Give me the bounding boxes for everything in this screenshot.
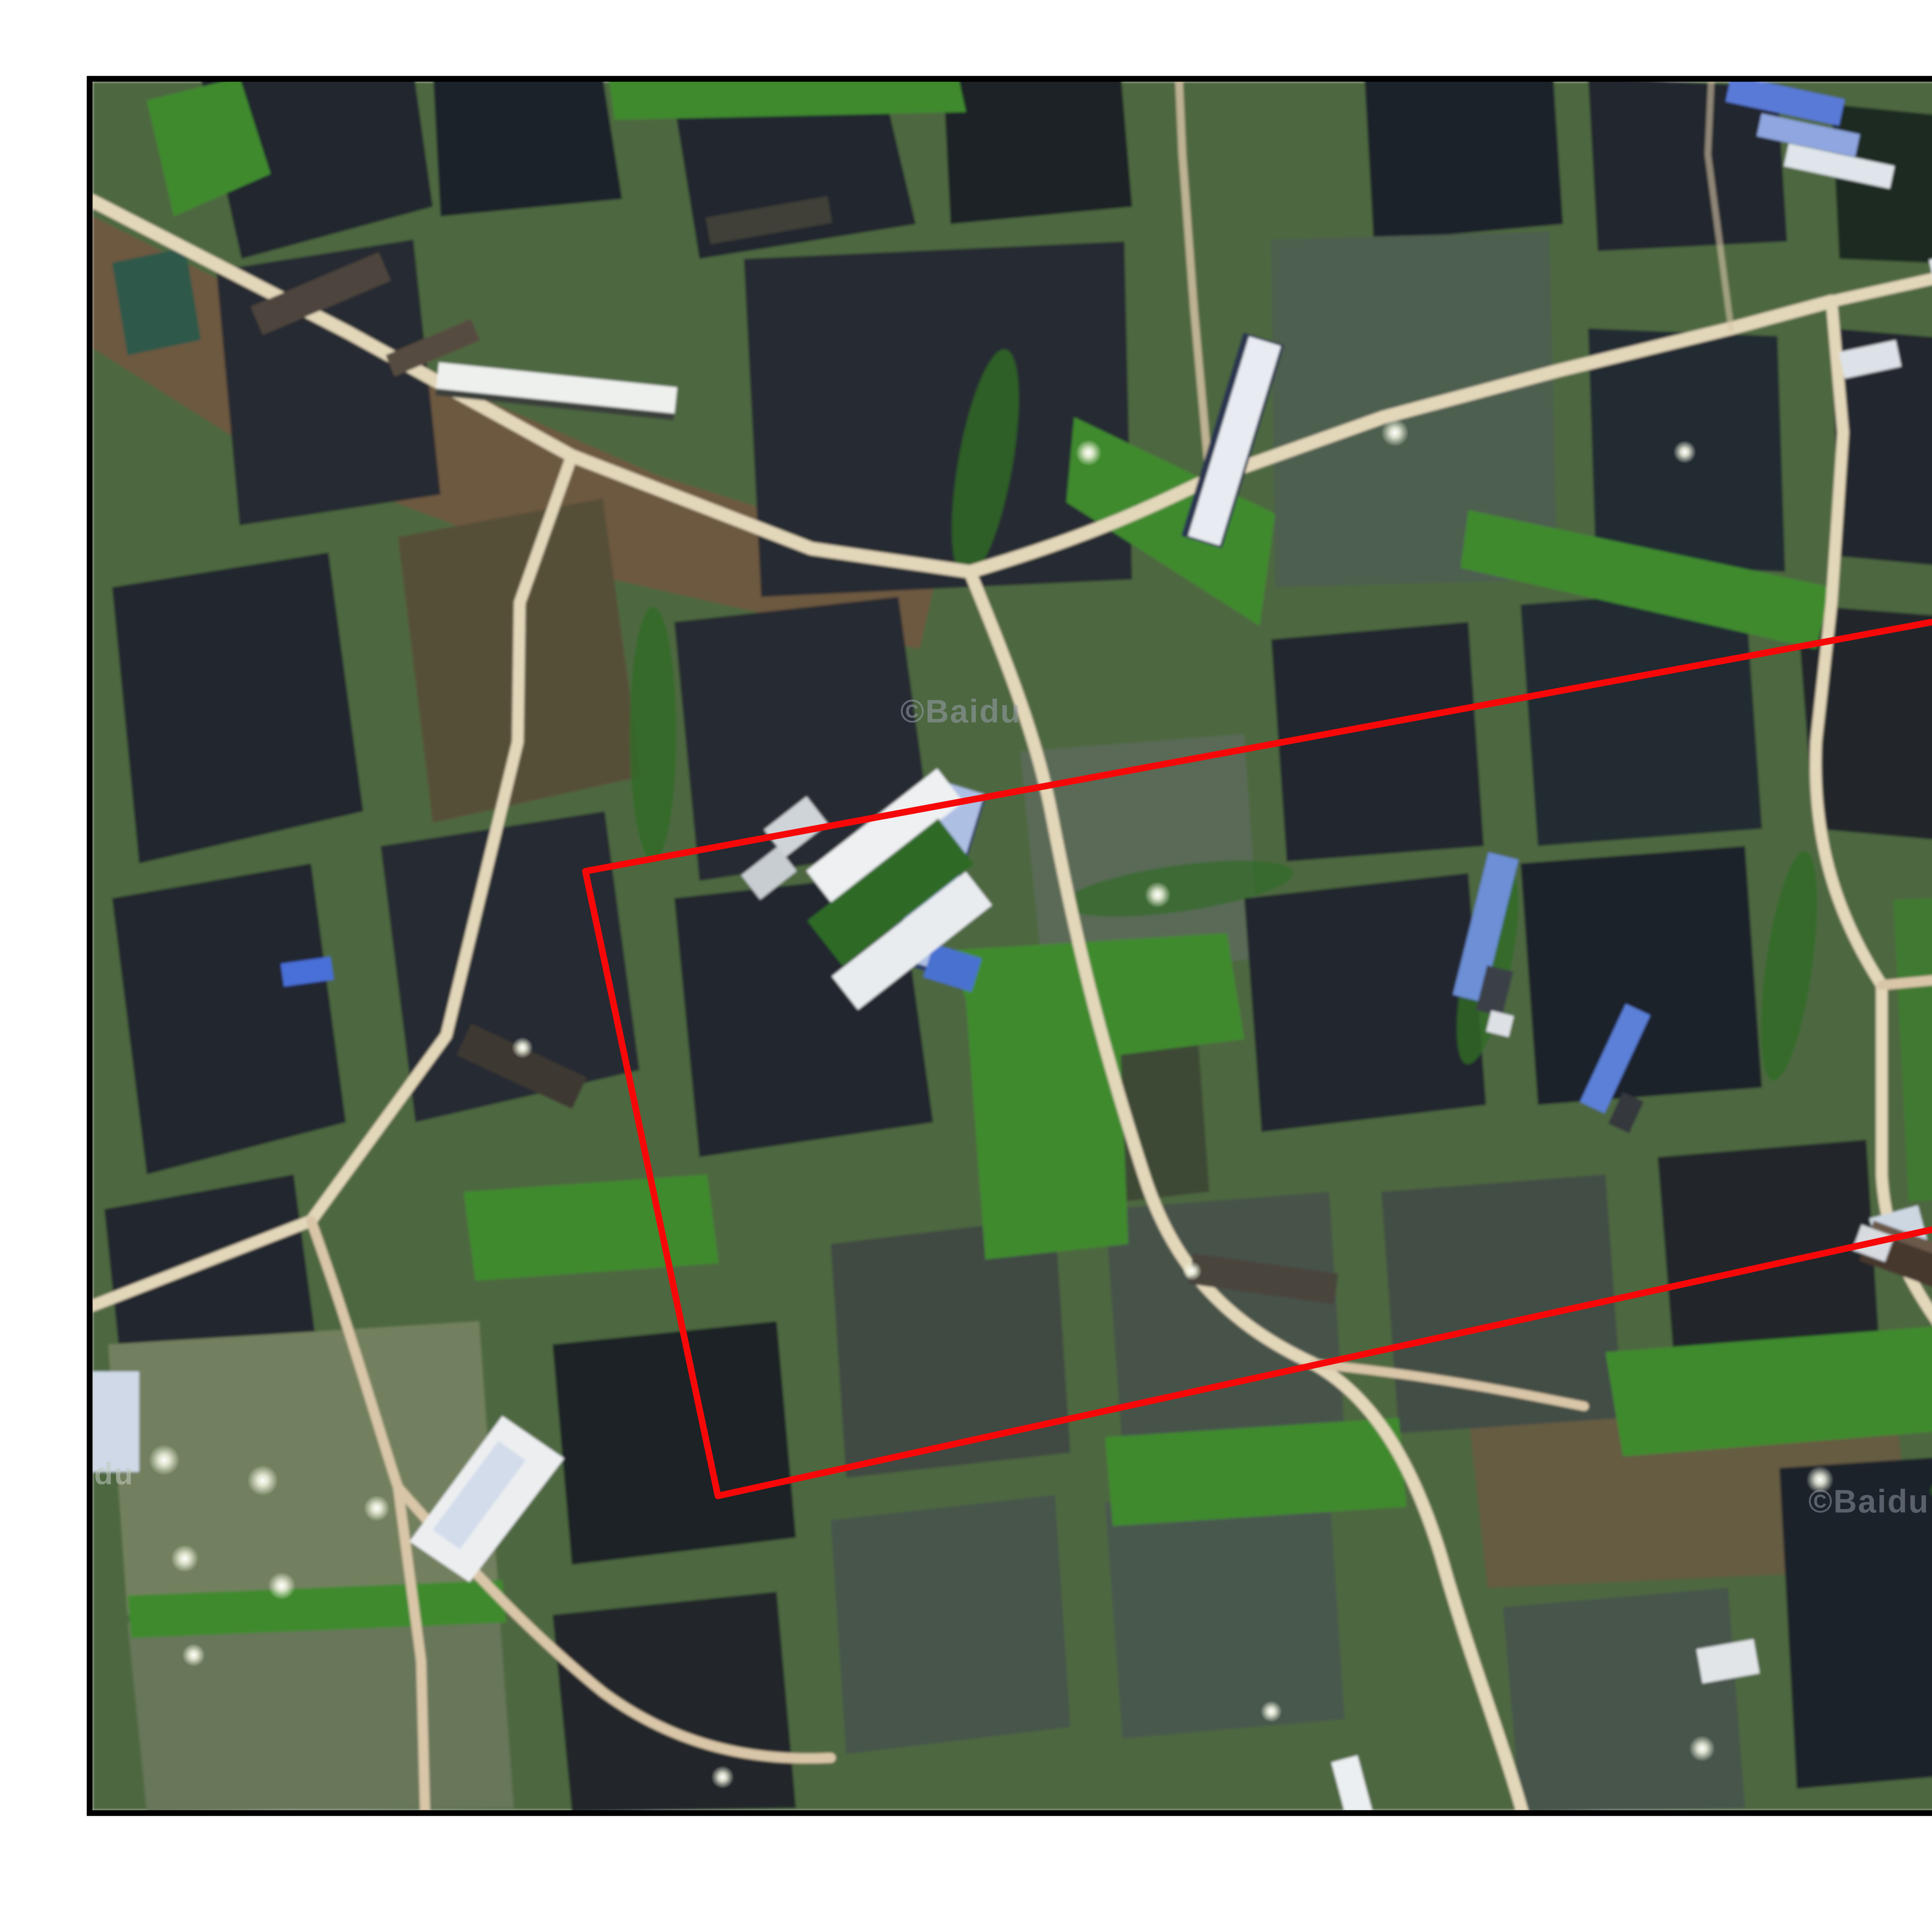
terrain-layer <box>92 42 1932 1822</box>
baidu-watermark: ©Baidu <box>900 693 1021 729</box>
screenshot-canvas: satellite photo of aquaculture fish pond… <box>0 0 1932 1917</box>
satellite-map[interactable]: satellite photo of aquaculture fish pond… <box>19 42 1932 1822</box>
map-figure: satellite photo of aquaculture fish pond… <box>0 0 1932 1917</box>
baidu-watermark: ©Baidu <box>1808 1483 1929 1519</box>
